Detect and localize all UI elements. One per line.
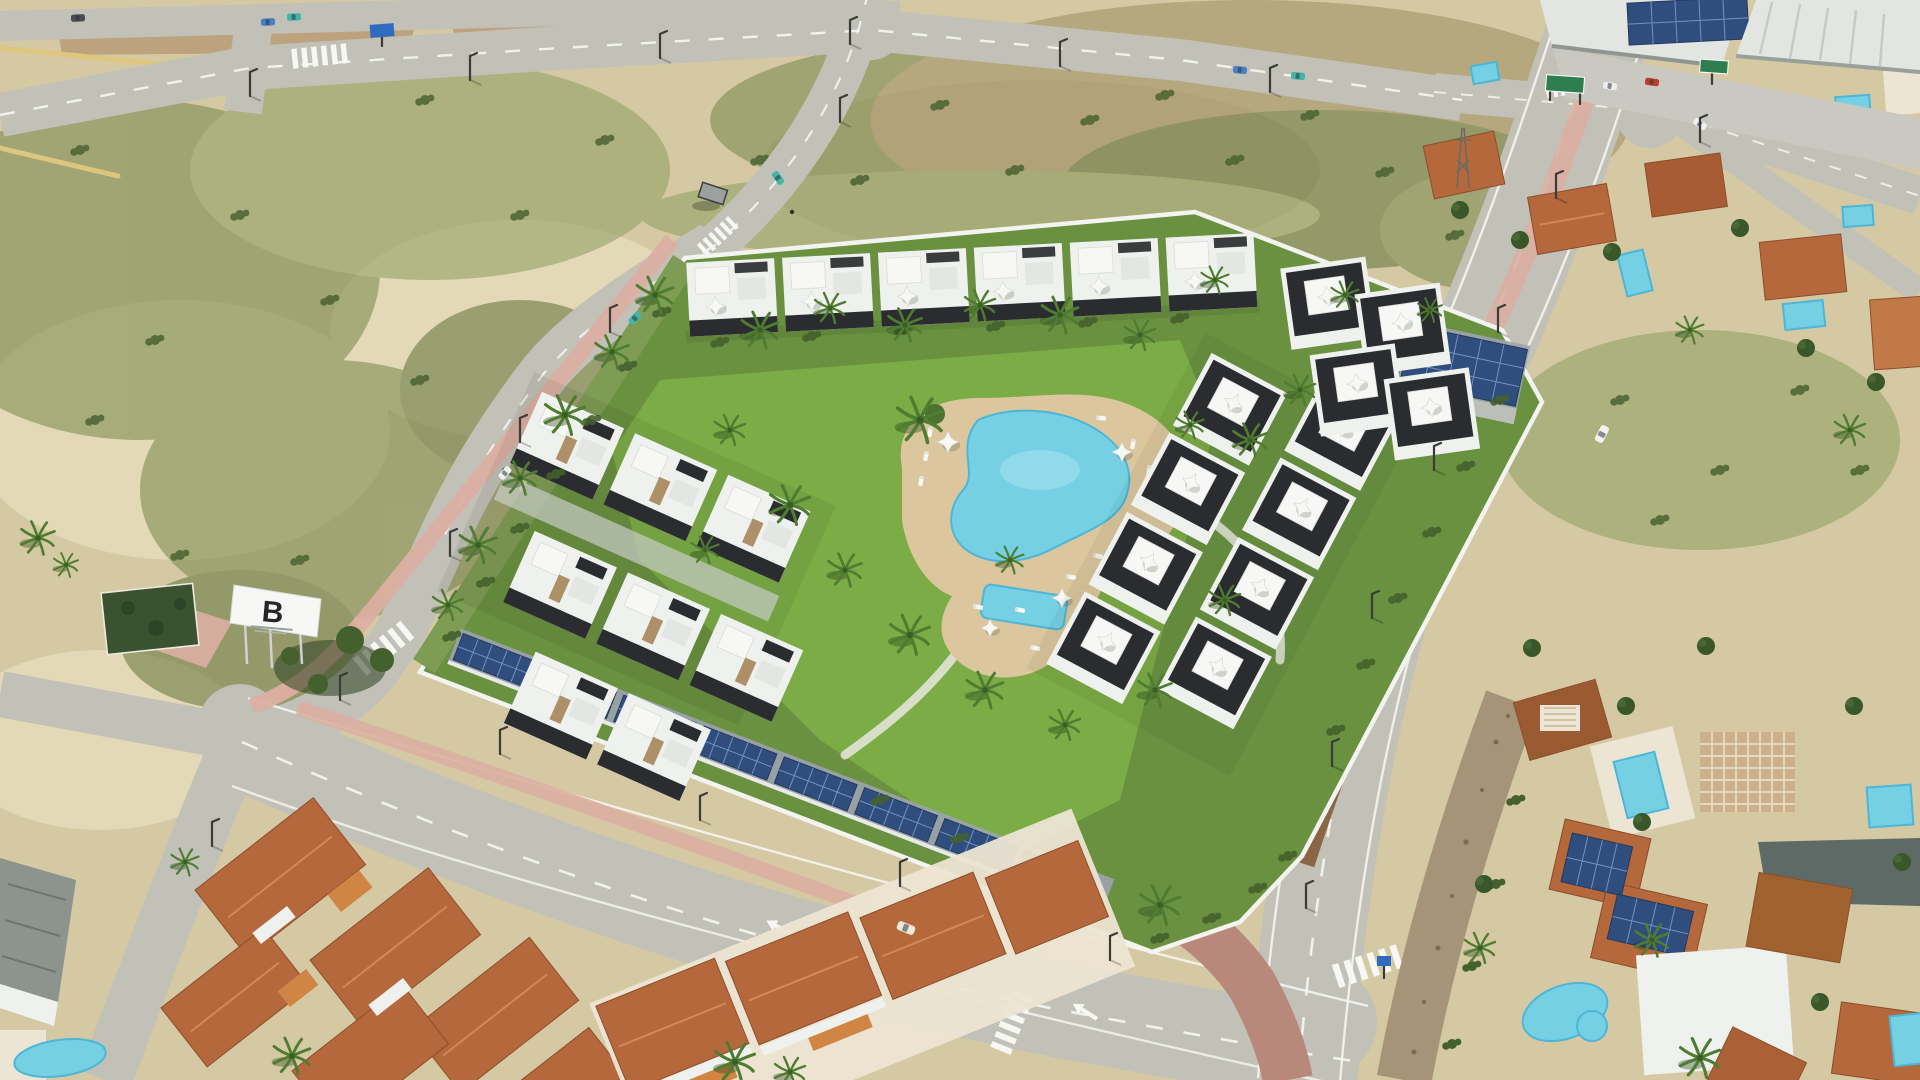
car-teal — [287, 13, 301, 21]
scene-svg: B — [0, 0, 1920, 1080]
moped — [790, 210, 794, 214]
villa-pool — [1842, 205, 1873, 227]
villa-pool — [1471, 62, 1500, 84]
car-blue — [1233, 66, 1248, 75]
villa-pool — [1867, 785, 1914, 828]
billboard-logo: B — [261, 595, 285, 630]
car-blue — [261, 18, 275, 26]
car-dark — [71, 14, 85, 22]
car-teal — [1291, 72, 1306, 81]
villa-pool — [1890, 1012, 1920, 1066]
aerial-photo: B — [0, 0, 1920, 1080]
checkered-patio — [1700, 732, 1795, 812]
villa-pool — [1783, 300, 1825, 330]
